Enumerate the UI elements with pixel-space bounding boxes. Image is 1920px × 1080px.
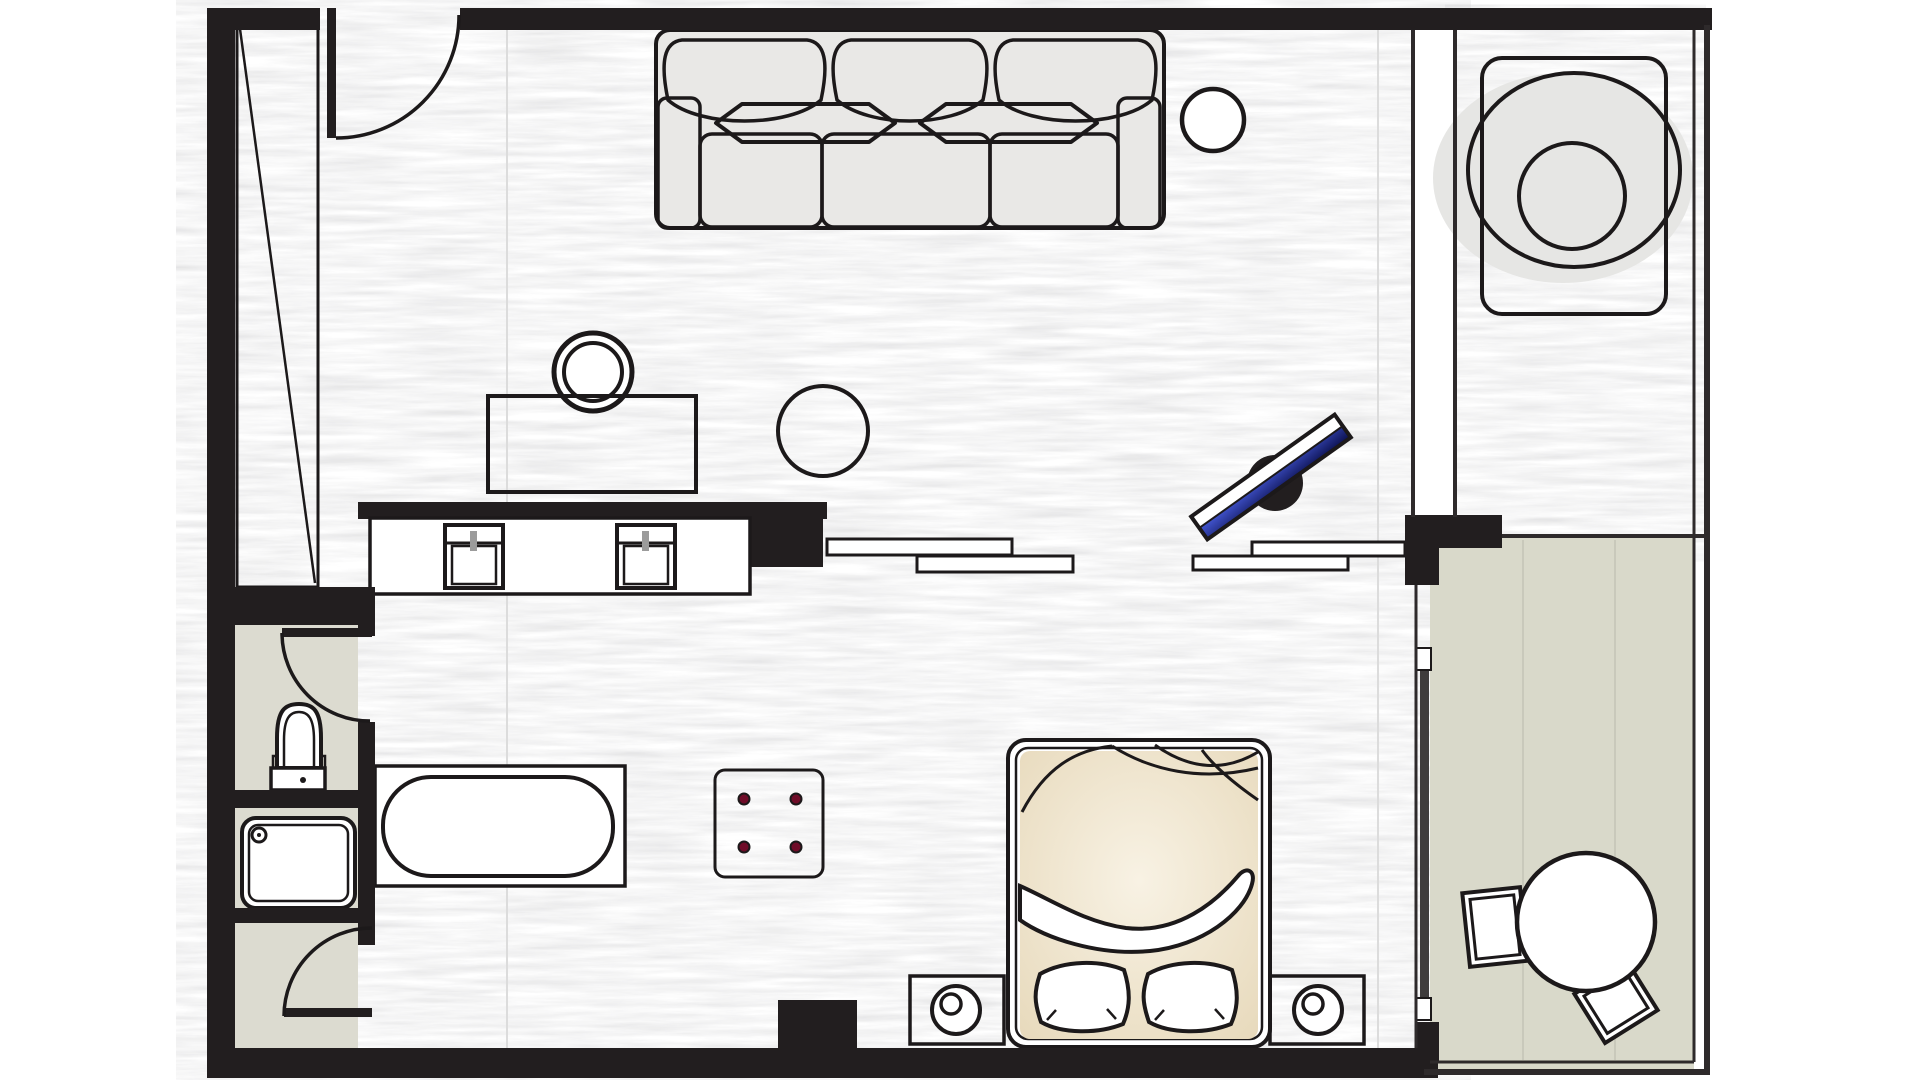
wall-wardrobe-nook [207,587,375,625]
bed [1008,740,1270,1047]
toilet [271,704,325,790]
door-leaf [327,8,336,138]
wall-bath-partition [358,923,375,945]
balcony-table [1517,853,1655,991]
bathtub [375,766,625,886]
wall-bath-partition [358,808,375,908]
wall-bath-partition [358,722,375,790]
side-table [1182,89,1244,151]
wall-top [460,8,1712,30]
bath-lobby-floor [235,923,358,1048]
shower [242,818,355,908]
door-leaf [282,628,372,637]
sink-right [617,525,675,588]
glazed-partition-strip [1412,30,1457,517]
desk-chair [554,333,632,411]
wall-stub-bottom [778,1000,857,1058]
door-leaf [284,1008,372,1017]
sink-left [445,525,503,588]
tub-basin [383,777,613,876]
wall-left [207,8,235,1050]
wall-shower-lobby [207,908,375,923]
wall-stub-balcony [1417,1022,1439,1062]
floor-plan-canvas [0,0,1920,1080]
balcony-floor [1430,536,1694,1072]
pillow-left [1036,963,1129,1031]
counter-wall-block [750,502,823,567]
toilet-tank [271,768,325,790]
wall-wc-shower [207,790,375,808]
sofa [656,30,1164,228]
pillow-right [1144,963,1237,1031]
floor-plan-drawing [0,0,1920,1080]
